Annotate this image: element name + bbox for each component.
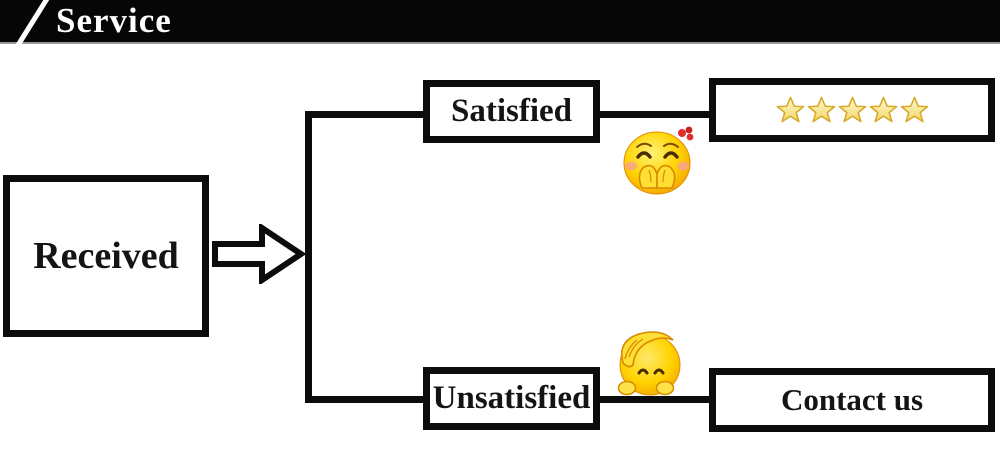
service-flowchart: Service Received Satisfied: [0, 0, 1000, 464]
contact-us-box: Contact us: [709, 368, 995, 432]
slash-icon: [16, 0, 50, 47]
unsatisfied-label: Unsatisfied: [433, 380, 591, 417]
unsatisfied-box: Unsatisfied: [423, 367, 600, 430]
satisfied-box: Satisfied: [423, 80, 600, 143]
satisfied-to-stars-line: [600, 111, 709, 118]
right-block-arrow-icon: [212, 224, 306, 284]
page-title: Service: [56, 0, 172, 42]
star-icon: [776, 95, 805, 125]
branch-bottom-line: [305, 396, 423, 403]
branch-top-line: [305, 111, 423, 118]
satisfied-label: Satisfied: [451, 93, 572, 130]
shy-emoji-icon: [613, 327, 685, 397]
star-icon: [869, 95, 898, 125]
star-icon: [807, 95, 836, 125]
star-icon: [900, 95, 929, 125]
star-row: [776, 95, 929, 125]
branch-vertical-line: [305, 111, 312, 403]
rating-box: [709, 78, 995, 142]
received-label: Received: [33, 234, 179, 278]
unsatisfied-to-contact-line: [600, 396, 709, 403]
star-icon: [838, 95, 867, 125]
received-box: Received: [3, 175, 209, 337]
contact-us-label: Contact us: [781, 382, 923, 418]
header-bar: Service: [0, 0, 1000, 44]
giggling-emoji-icon: [620, 126, 700, 196]
